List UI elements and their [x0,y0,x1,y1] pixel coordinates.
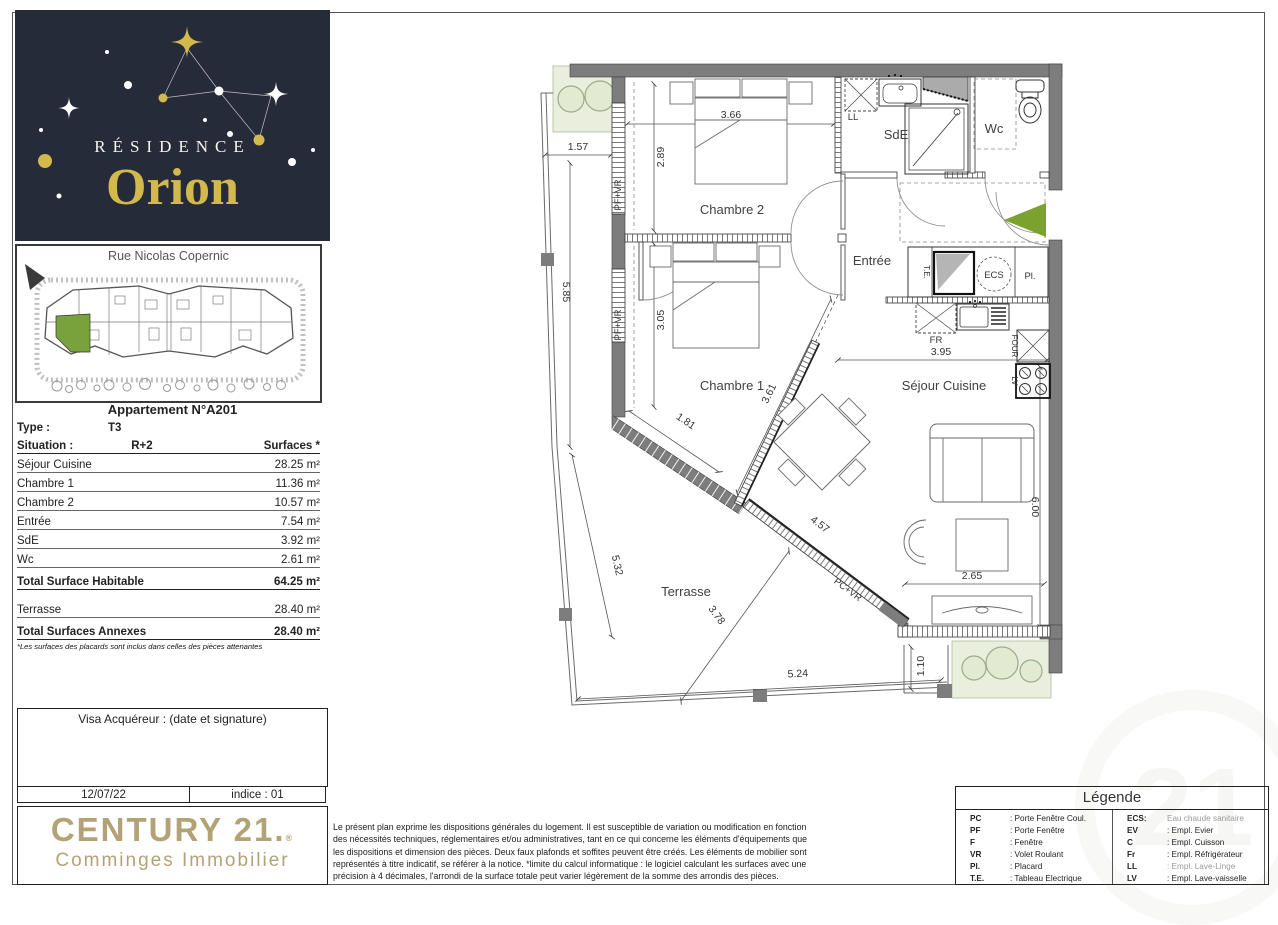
residence-logo: RÉSIDENCE Orion [15,10,330,241]
table-row: Wc2.61 m² [17,549,320,568]
table-row: Chambre 210.57 m² [17,492,320,511]
agency-logo-box: CENTURY 21.® Comminges Immobilier [17,806,328,885]
surfaces-header: Surfaces * [264,440,320,452]
label-pfvr-2: PF+VR [613,309,624,340]
table-row: Chambre 111.36 m² [17,473,320,492]
dim-4-57: 4.57 [808,514,832,536]
legend-row: Pl.: Placard [970,860,1112,872]
room-label-sejour: Séjour Cuisine [902,378,987,393]
window-pc-vr [742,498,909,628]
bed-chambre2 [670,79,812,184]
date-row: 12/07/22 indice : 01 [17,787,326,803]
label-ll: LL [848,112,859,123]
floor-plan: Chambre 2 Chambre 1 SdE Wc Entrée Séjour… [520,40,1076,746]
dim-6-00: 6.00 [1029,497,1041,518]
total-habitable-row: Total Surface Habitable64.25 m² [17,568,320,590]
visa-title: Visa Acquéreur : (date et signature) [18,712,327,726]
apartment-title: Appartement N°A201 [15,402,330,417]
legend-row: VR: Volet Roulant [970,848,1112,860]
dim-2-89: 2.89 [655,147,667,168]
surface-table: Type : T3 Situation : R+2 Surfaces * Séj… [17,419,320,651]
legal-disclaimer: Le présent plan exprime les dispositions… [333,821,815,883]
registered-mark: ® [286,833,295,843]
site-plan: Rue Nicolas Copernic [15,244,322,403]
walls [570,64,1062,673]
dim-3-95: 3.95 [931,346,952,358]
visa-box: Visa Acquéreur : (date et signature) [17,708,328,787]
type-label: Type : [17,422,50,434]
agency-subtitle: Comminges Immobilier [18,850,327,872]
dim-5-85: 5.85 [560,282,572,303]
room-label-sde: SdE [884,127,909,142]
room-label-wc: Wc [985,121,1004,136]
label-four: FOUR [1010,335,1019,358]
label-te: T.E. [922,265,931,279]
label-pl: Pl. [1024,271,1035,282]
legend-row: EV: Empl. Evier [1127,824,1268,836]
site-plan-drawing [17,260,320,400]
label-lv: LV [1010,376,1019,386]
table-header-row: Situation : R+2 Surfaces * [17,435,320,454]
type-row: Type : T3 [17,419,320,435]
legend-row: LV: Empl. Lave-vaisselle [1127,872,1268,884]
label-fr: FR [930,335,943,346]
table-row: Séjour Cuisine28.25 m² [17,454,320,473]
table-footnote: *Les surfaces des placards sont inclus d… [17,642,320,651]
dim-5-24: 5.24 [787,667,808,680]
room-label-entree: Entrée [853,253,891,268]
terrasse-row: Terrasse28.40 m² [17,599,320,618]
indice-cell: indice : 01 [190,787,326,803]
situation-value: R+2 [131,440,264,452]
wc-fixtures [1016,80,1044,123]
situation-label: Situation : [17,440,73,452]
legend-row: PF: Porte Fenêtre [970,824,1112,836]
legend-row: F: Fenêtre [970,836,1112,848]
legend: Légende PC: Porte Fenêtre Coul. PF: Port… [955,786,1269,885]
room-label-terrasse: Terrasse [661,584,711,599]
entrance-arrow [1004,203,1046,237]
legend-title: Légende [956,787,1268,810]
room-label-chambre1: Chambre 1 [700,378,764,393]
date-cell: 12/07/22 [17,787,190,803]
room-label-chambre2: Chambre 2 [700,202,764,217]
label-pfvr-1: PF+VR [613,179,624,210]
dim-3-66: 3.66 [721,109,742,121]
legend-row: PC: Porte Fenêtre Coul. [970,812,1112,824]
dim-3-05: 3.05 [655,310,667,331]
dim-1-57: 1.57 [568,141,589,153]
legend-row: T.E.: Tableau Electrique [970,872,1112,884]
table-row: Entrée7.54 m² [17,511,320,530]
dim-3-78: 3.78 [706,603,728,627]
residence-name: Orion [15,158,330,217]
legend-row: Fr: Empl. Réfrigérateur [1127,848,1268,860]
residence-word: RÉSIDENCE [15,137,330,157]
dim-1-10: 1.10 [915,656,927,677]
dim-1-81: 1.81 [674,411,698,432]
legend-row: C: Empl. Cuisson [1127,836,1268,848]
type-value: T3 [108,422,320,434]
legend-row: LL: Empl. Lave-Linge [1127,860,1268,872]
dim-2-65: 2.65 [962,570,983,582]
total-annexes-row: Total Surfaces Annexes28.40 m² [17,618,320,640]
legend-row: ECS:Eau chaude sanitaire [1127,812,1268,824]
label-ecs: ECS [984,270,1004,281]
dim-5-32: 5.32 [609,554,625,577]
sde-fixtures [845,74,968,174]
table-row: SdE3.92 m² [17,530,320,549]
agency-name: CENTURY 21.® [18,812,327,848]
living-furniture [751,371,1034,624]
bed-chambre1 [650,243,780,348]
